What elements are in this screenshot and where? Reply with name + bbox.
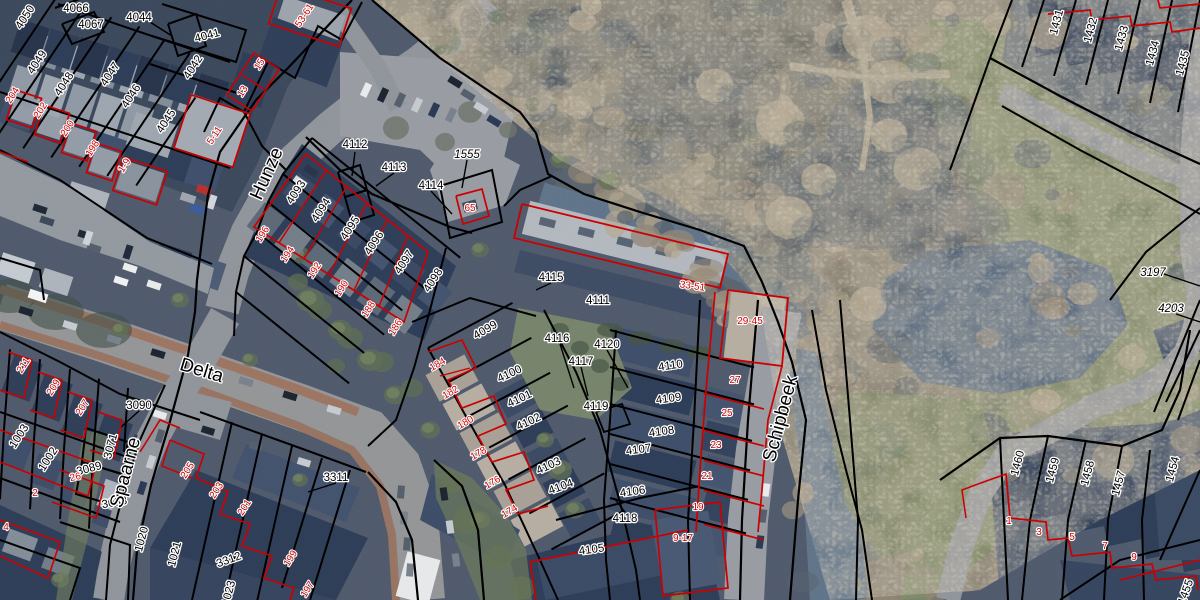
svg-text:1: 1 [1006,516,1012,527]
svg-text:4112: 4112 [343,139,368,151]
svg-text:4067: 4067 [78,19,104,31]
svg-text:19: 19 [692,502,704,513]
svg-text:4115: 4115 [539,272,564,284]
svg-text:3197: 3197 [1140,267,1166,279]
svg-text:4114: 4114 [419,180,444,192]
svg-text:4111: 4111 [586,295,610,307]
svg-text:4: 4 [3,522,9,533]
svg-text:3: 3 [1036,527,1042,538]
svg-text:1555: 1555 [454,149,480,161]
svg-text:29-45: 29-45 [737,316,763,327]
svg-text:4119: 4119 [584,401,609,413]
svg-text:5: 5 [1069,532,1075,543]
svg-text:9-17: 9-17 [673,533,693,544]
svg-text:4066: 4066 [63,3,89,15]
svg-text:4116: 4116 [545,333,570,345]
svg-text:4120: 4120 [594,339,620,351]
svg-text:9: 9 [1131,552,1137,563]
svg-text:4117: 4117 [569,356,594,368]
svg-text:25: 25 [721,408,733,419]
svg-text:21: 21 [701,471,713,482]
svg-text:3311: 3311 [324,472,349,484]
svg-text:4203: 4203 [1158,303,1184,315]
svg-text:4044: 4044 [126,12,152,24]
svg-text:3090: 3090 [126,400,152,412]
svg-text:7: 7 [1102,541,1108,552]
svg-text:23: 23 [710,440,722,451]
svg-text:2: 2 [32,488,38,499]
svg-text:65: 65 [464,203,476,214]
svg-text:4113: 4113 [382,162,407,174]
svg-text:27: 27 [729,375,741,386]
svg-text:4118: 4118 [613,513,638,525]
